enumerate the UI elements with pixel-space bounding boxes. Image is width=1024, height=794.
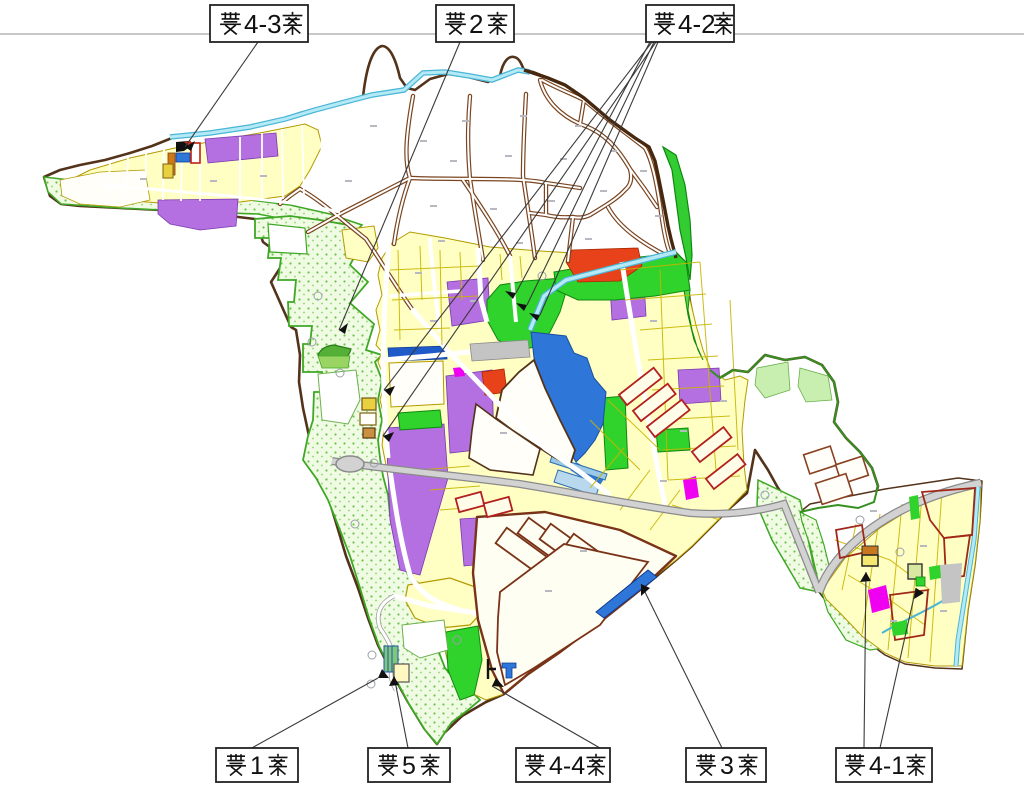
- svg-text:1: 1: [250, 752, 264, 780]
- svg-text:3: 3: [720, 752, 734, 780]
- svg-text:4-4: 4-4: [549, 752, 585, 780]
- svg-text:4-2: 4-2: [678, 9, 716, 39]
- svg-text:4-1: 4-1: [869, 752, 905, 780]
- svg-text:2: 2: [469, 9, 483, 39]
- svg-text:5: 5: [402, 752, 416, 780]
- svg-text:4-3: 4-3: [244, 9, 282, 39]
